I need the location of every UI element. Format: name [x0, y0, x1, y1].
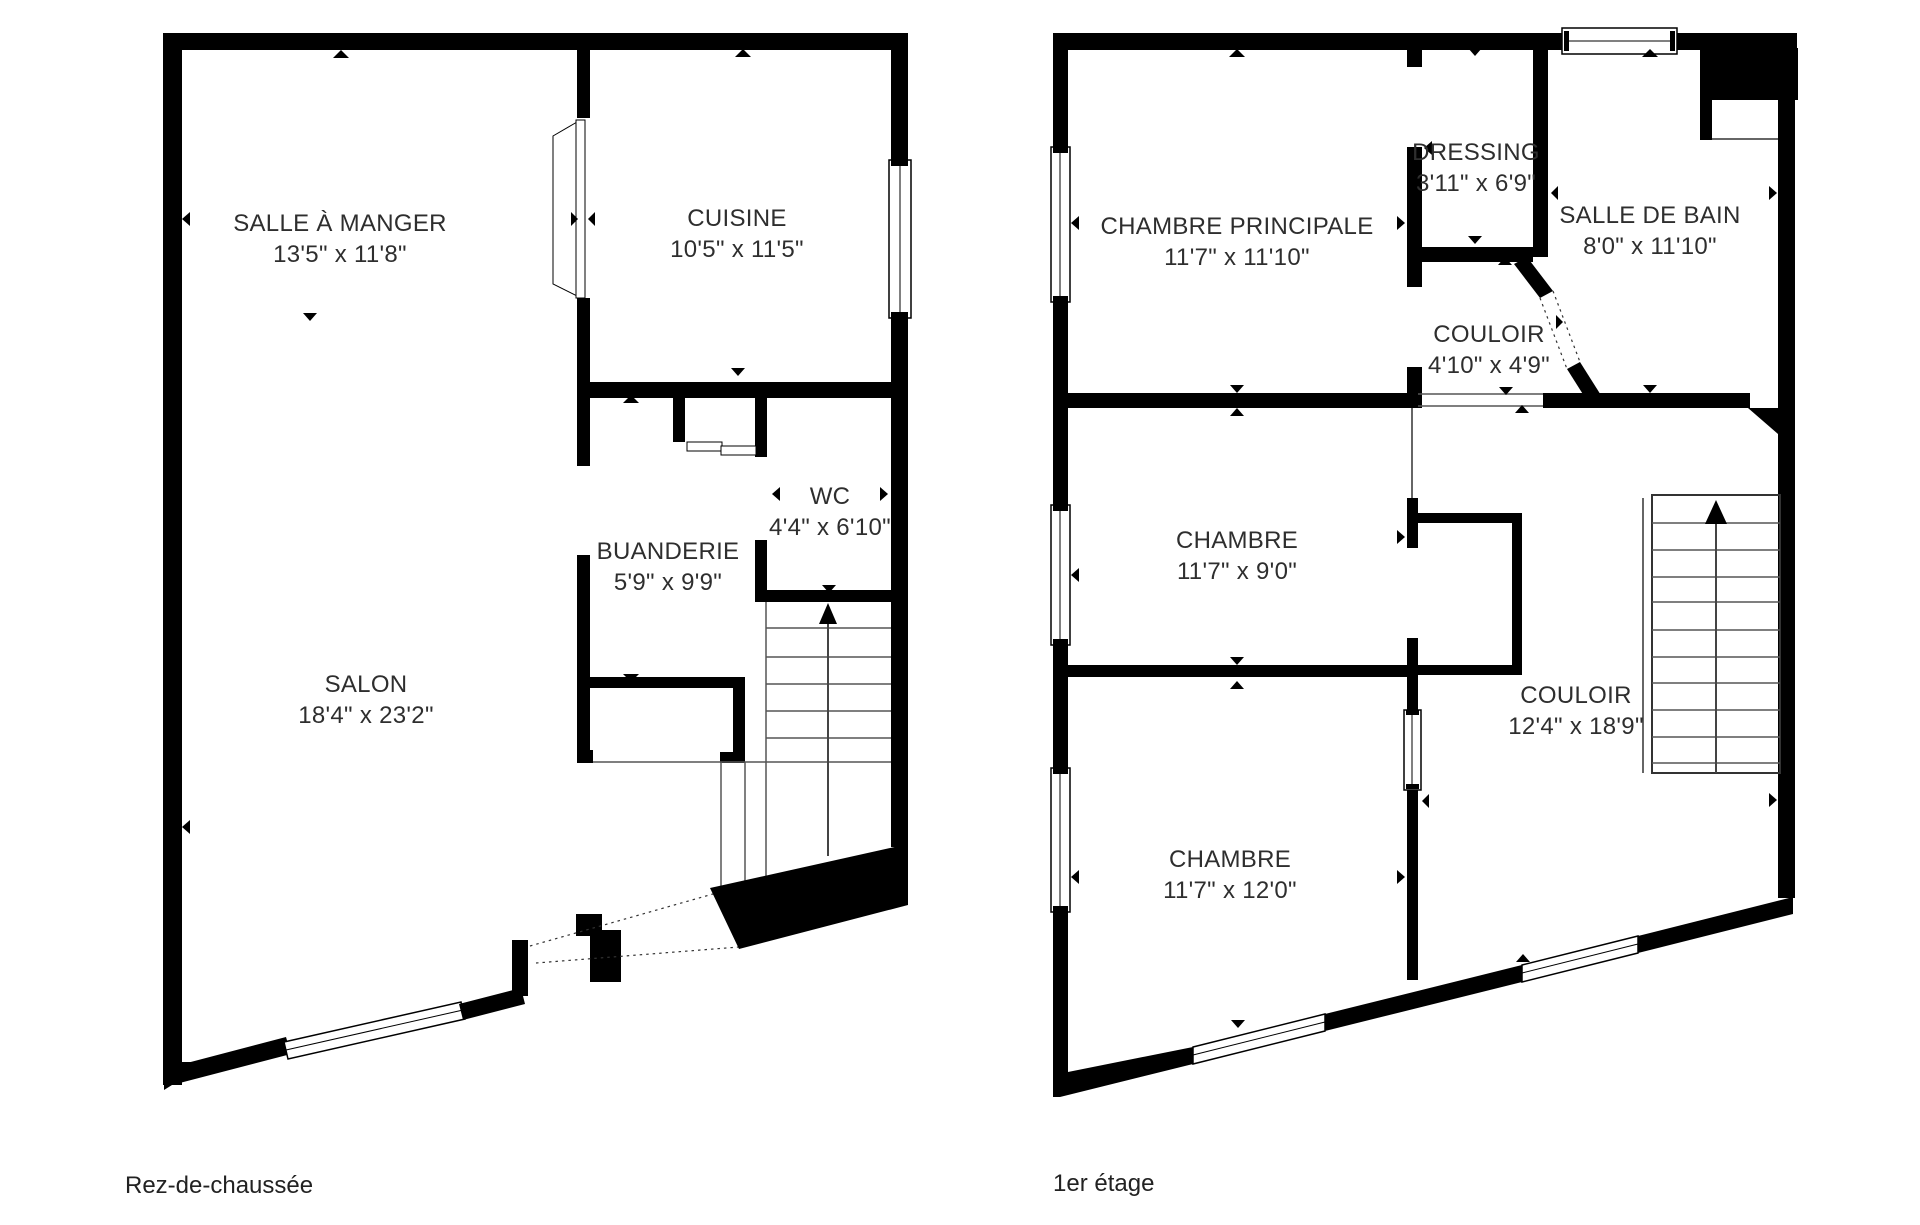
room-name: SALLE À MANGER: [233, 208, 447, 239]
room-dims: 4'10" x 4'9": [1428, 350, 1550, 381]
room-name: CUISINE: [670, 203, 804, 234]
room-name: COULOIR: [1508, 680, 1644, 711]
room-dims: 8'0" x 11'10": [1559, 231, 1740, 262]
room-label-buanderie: BUANDERIE 5'9" x 9'9": [597, 536, 740, 598]
left-wall-window-2: [1051, 505, 1070, 645]
entry-door-path: [530, 894, 713, 946]
room-dims: 11'7" x 11'10": [1100, 242, 1373, 273]
stairs-up-arrow-icon: [819, 603, 837, 624]
first-staircase: [1643, 495, 1780, 773]
room-name: CHAMBRE: [1163, 844, 1297, 875]
top-wall-window: [1562, 28, 1677, 54]
room-dims: 11'7" x 12'0": [1163, 875, 1297, 906]
room-label-dressing: DRESSING 3'11" x 6'9": [1412, 137, 1540, 199]
room-label-salle-de-bain: SALLE DE BAIN 8'0" x 11'10": [1559, 200, 1740, 262]
room-label-salon: SALON 18'4" x 23'2": [298, 669, 434, 731]
room-dims: 13'5" x 11'8": [233, 239, 447, 270]
room-label-chambre-bas: CHAMBRE 11'7" x 12'0": [1163, 844, 1297, 906]
first-diagonal-wall: [1053, 897, 1793, 1097]
wall-direction-marker-icon: [333, 50, 349, 58]
wall-direction-marker-icon: [1229, 49, 1245, 57]
room-dims: 10'5" x 11'5": [670, 234, 804, 265]
room-label-wc: WC 4'4" x 6'10": [769, 481, 891, 543]
room-label-couloir-bas: COULOIR 12'4" x 18'9": [1508, 680, 1644, 742]
room-name: WC: [769, 481, 891, 512]
ground-interior-walls: [577, 50, 908, 763]
floor-caption-first: 1er étage: [1053, 1170, 1154, 1198]
room-dims: 3'11" x 6'9": [1412, 168, 1540, 199]
room-label-chambre-milieu: CHAMBRE 11'7" x 9'0": [1176, 525, 1298, 587]
stairs-up-arrow-icon: [1705, 500, 1727, 524]
floor-caption-ground: Rez-de-chaussée: [125, 1172, 313, 1200]
room-label-chambre-principale: CHAMBRE PRINCIPALE 11'7" x 11'10": [1100, 211, 1373, 273]
room-dims: 12'4" x 18'9": [1508, 711, 1644, 742]
floorplan-page: SALLE À MANGER 13'5" x 11'8" CUISINE 10'…: [0, 0, 1920, 1225]
ground-diagonal-wall: [164, 844, 908, 1090]
room-label-cuisine: CUISINE 10'5" x 11'5": [670, 203, 804, 265]
room-dims: 18'4" x 23'2": [298, 700, 434, 731]
room-name: SALON: [298, 669, 434, 700]
kitchen-window: [889, 160, 911, 318]
laundry-closet-door: [687, 442, 756, 455]
kitchen-door: [553, 120, 585, 298]
left-wall-window-3: [1051, 768, 1070, 912]
floor-plan-ground: [163, 33, 911, 1090]
floorplan-drawing: [0, 0, 1920, 1225]
first-interior-walls: [1068, 48, 1750, 980]
room-name: COULOIR: [1428, 319, 1550, 350]
hall-interior-window: [1404, 710, 1421, 790]
left-wall-window-1: [1051, 147, 1070, 302]
room-name: SALLE DE BAIN: [1559, 200, 1740, 231]
room-name: BUANDERIE: [597, 536, 740, 567]
first-windows: [1051, 28, 1677, 912]
room-dims: 4'4" x 6'10": [769, 512, 891, 543]
room-name: CHAMBRE: [1176, 525, 1298, 556]
room-dims: 5'9" x 9'9": [597, 567, 740, 598]
room-label-couloir-haut: COULOIR 4'10" x 4'9": [1428, 319, 1550, 381]
room-name: CHAMBRE PRINCIPALE: [1100, 211, 1373, 242]
room-label-salle-a-manger: SALLE À MANGER 13'5" x 11'8": [233, 208, 447, 270]
room-name: DRESSING: [1412, 137, 1540, 168]
room-dims: 11'7" x 9'0": [1176, 556, 1298, 587]
